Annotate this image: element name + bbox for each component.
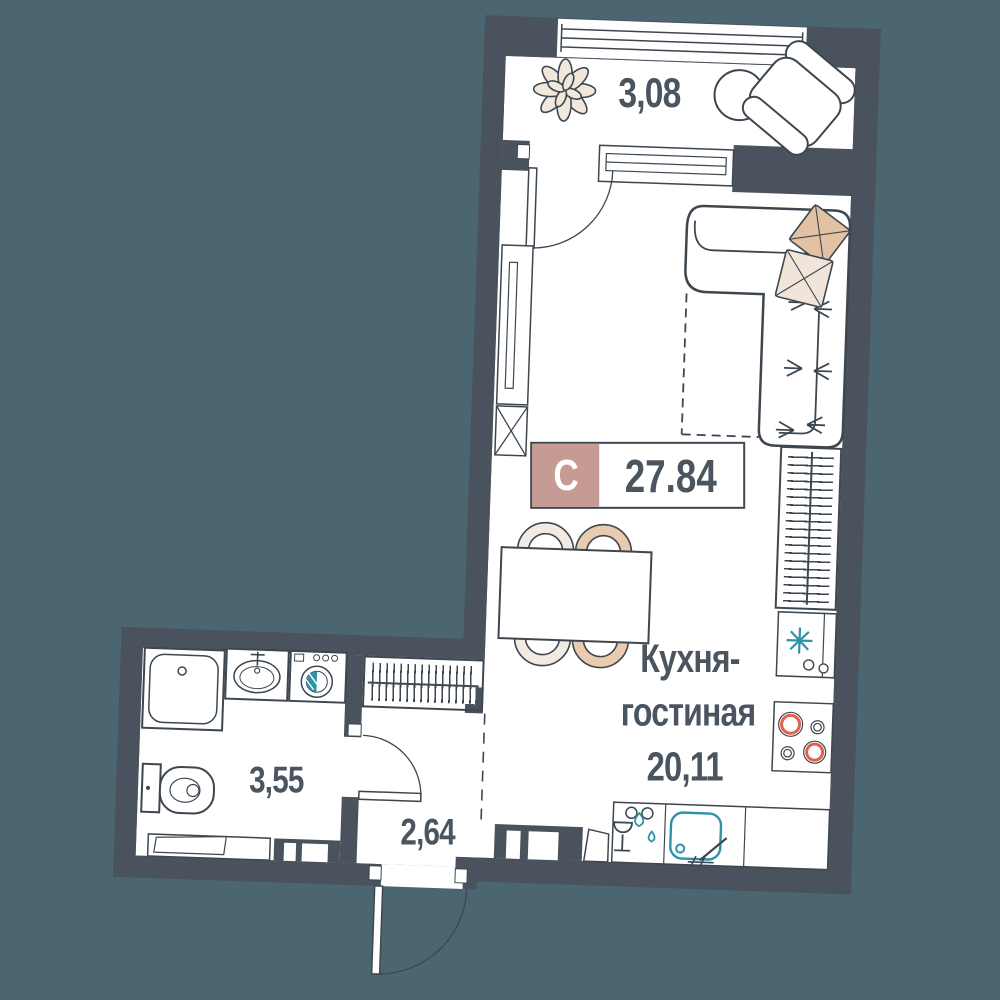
total-area-value: 27.84 (599, 444, 743, 507)
entry-door-arc-icon (366, 866, 468, 977)
washbasin-icon (225, 649, 289, 701)
shower-icon (142, 648, 225, 731)
floor-plan: С 27.84 3,08 Кухня- гостиная 20,11 3,55 … (0, 0, 1000, 1000)
sofa-foldout-outline (682, 293, 764, 437)
cabinet-icon (497, 245, 534, 405)
panel-icon (584, 829, 609, 862)
kitchen-living-label-line2: гостиная (588, 691, 788, 735)
shaft-icon (495, 406, 528, 456)
room-boundary-dashed (481, 714, 485, 824)
washing-machine-icon (289, 651, 347, 703)
bench-icon (148, 834, 271, 860)
area-badge: С 27.84 (530, 442, 745, 509)
window-icon (598, 145, 733, 186)
door-arc-icon (346, 724, 424, 802)
bathroom-area-label: 3,55 (226, 760, 326, 800)
kitchen-living-area-label: 20,11 (585, 745, 785, 789)
dining-table-icon (498, 547, 651, 643)
apartment-type-letter: С (532, 444, 599, 507)
plant-icon (533, 58, 597, 122)
hall-area-label: 2,64 (378, 813, 478, 853)
kitchen-living-label-line1: Кухня- (590, 637, 790, 681)
plan-rotated-layer: С 27.84 3,08 Кухня- гостиная 20,11 3,55 … (0, 0, 1000, 1000)
toilet-icon (141, 764, 215, 814)
pillow-icon (775, 249, 833, 307)
loggia-area-label: 3,08 (600, 71, 700, 115)
window-icon (557, 19, 807, 66)
floor-plan-graphics (0, 0, 1000, 1000)
sofa-icon (679, 200, 851, 448)
